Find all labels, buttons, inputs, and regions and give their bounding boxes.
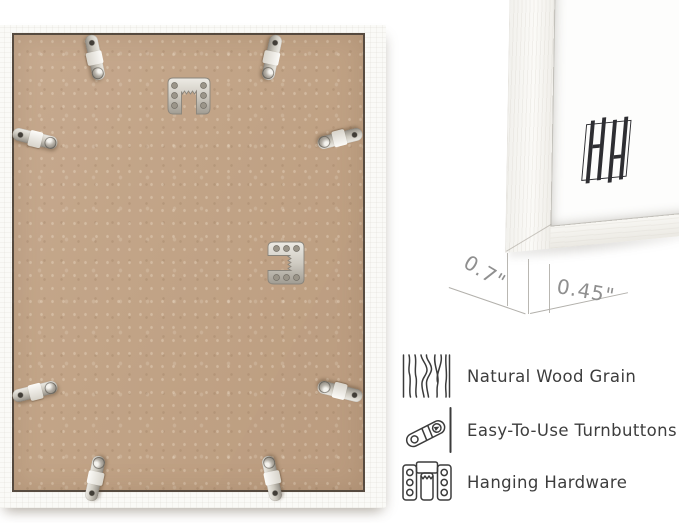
sawtooth-hanger-top-icon (167, 77, 211, 115)
extension-line-middle (528, 259, 529, 314)
frame-corner-detail (505, 0, 679, 253)
hanging-hardware-icon (400, 460, 467, 504)
brand-frame-logo-icon (578, 112, 635, 189)
feature-label: Hanging Hardware (467, 473, 627, 492)
feature-label: Easy-To-Use Turnbuttons (467, 421, 677, 440)
frame-back-photo (0, 25, 386, 508)
feature-row-hanging-hardware: Hanging Hardware (400, 458, 627, 506)
dimension-label-face: 0.45" (547, 273, 624, 309)
wood-grain-icon (400, 353, 467, 399)
feature-row-wood-grain: Natural Wood Grain (400, 352, 636, 400)
dimension-line-depth (449, 287, 526, 314)
feature-row-turnbuttons: Easy-To-Use Turnbuttons (400, 406, 677, 454)
dimension-label-depth: 0.7" (456, 248, 515, 296)
feature-label: Natural Wood Grain (467, 367, 636, 386)
product-image: 0.7" 0.45" Natural Wood Grain (0, 0, 679, 523)
turnbutton-icon (400, 406, 467, 454)
sawtooth-hanger-center-icon (267, 241, 305, 285)
corner-moulding-side (505, 0, 556, 253)
